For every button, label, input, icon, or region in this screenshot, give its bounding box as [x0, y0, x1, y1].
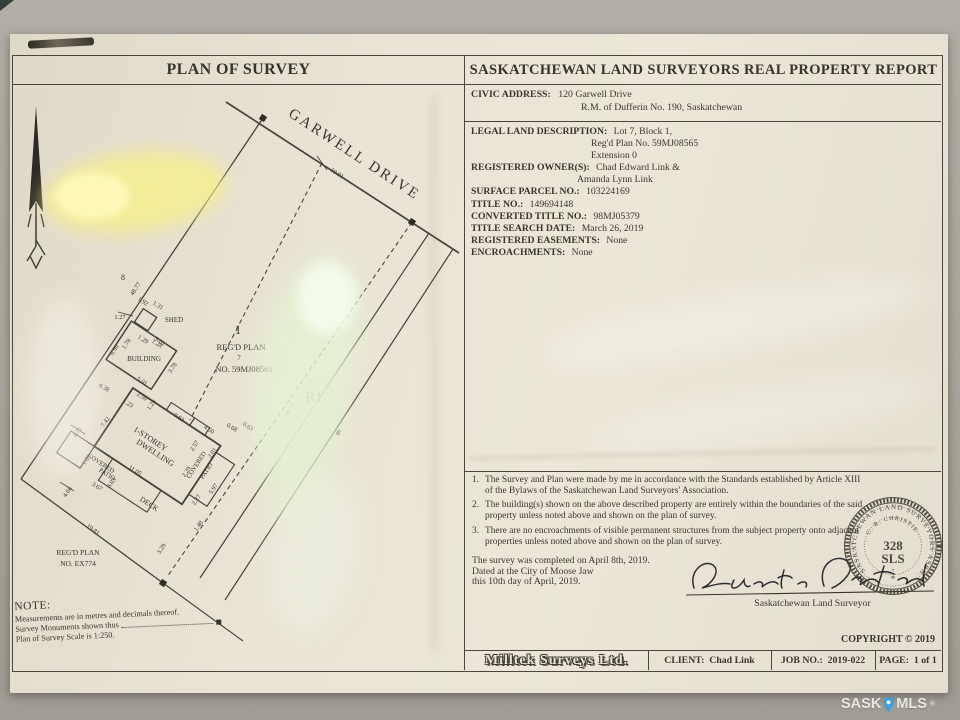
footer-job-number: JOB NO.: 2019-022	[771, 651, 875, 670]
seal-letters: SLS	[881, 551, 904, 566]
sask-mls-watermark: SASK MLS®	[841, 696, 935, 712]
encroachments-label: ENCROACHMENTS:	[471, 247, 565, 258]
measurement: 2.01	[207, 447, 219, 460]
measurement: 3.29	[156, 543, 168, 556]
note-3-number: 3.	[472, 526, 485, 548]
monument-symbol	[217, 620, 222, 625]
block-plan-line2: NO. 59MJ08565	[215, 364, 272, 374]
footer-client: CLIENT: Chad Link	[648, 651, 771, 670]
neighbour-lot-label: 8	[121, 273, 125, 282]
measurement: 1.27	[114, 314, 126, 321]
zone-label: R1	[305, 390, 323, 406]
seal-star: *	[891, 574, 896, 584]
measurement: 7.42	[100, 416, 112, 429]
converted-title-value: 98MJ05379	[593, 211, 639, 222]
title-no-label: TITLE NO.:	[471, 199, 523, 210]
title-search-date-label: TITLE SEARCH DATE:	[471, 223, 575, 234]
note-2-text: The building(s) shown on the above descr…	[485, 500, 868, 522]
copyright-notice: COPYRIGHT © 2019	[700, 634, 935, 645]
note-1: 1. The Survey and Plan were made by me i…	[472, 475, 868, 497]
adjacent-line-2	[225, 249, 453, 600]
measurement: 2.50	[135, 391, 148, 403]
south-plan-line1: REG'D PLAN	[56, 548, 100, 557]
legal-description-label: LEGAL LAND DESCRIPTION:	[471, 126, 607, 137]
surveyor-notes: 1. The Survey and Plan were made by me i…	[472, 475, 868, 551]
deck-label: DECK	[138, 495, 161, 514]
note-3: 3. There are no encroachments of visible…	[472, 526, 868, 548]
measurement: 1.23	[121, 398, 134, 410]
measurement: 0.68	[225, 422, 238, 434]
measurement: 1.92	[136, 296, 149, 308]
block-lot-number: 7	[237, 354, 241, 362]
footer-company: Milltek Surveys Ltd.	[465, 651, 648, 670]
easements-value: None	[606, 235, 627, 246]
north-arrow-icon	[27, 106, 45, 268]
watermark-reg-mark: ®	[930, 701, 935, 708]
converted-title-label: CONVERTED TITLE NO.:	[471, 211, 587, 222]
measurement: 1.40	[193, 520, 205, 533]
block-plan-line1: REG'D PLAN	[217, 342, 266, 352]
measurement: 48.77	[129, 281, 143, 298]
surface-parcel-label: SURFACE PARCEL NO.:	[471, 186, 580, 197]
measurement: 1.25	[146, 399, 158, 412]
measurement: 4.66	[62, 486, 74, 499]
legal-description-block: LEGAL LAND DESCRIPTION: Lot 7, Block 1, …	[471, 126, 931, 259]
civic-address-line2: R.M. of Dufferin No. 190, Saskatchewan	[581, 101, 931, 114]
civic-rule	[465, 121, 941, 122]
measurement: 1.29	[136, 334, 149, 346]
photo-of-survey-document: PLAN OF SURVEY SASKATCHEWAN LAND SURVEYO…	[0, 0, 960, 720]
map-pin-icon	[883, 697, 894, 712]
measurement: 19.81	[329, 167, 345, 181]
survey-monuments	[159, 114, 416, 587]
owners-line1: Chad Edward Link &	[596, 162, 680, 173]
note-1-text: The Survey and Plan were made by me in a…	[485, 475, 868, 497]
note-3-text: There are no encroachments of visible pe…	[485, 526, 868, 548]
building-label: BUILDING	[127, 355, 161, 363]
surface-parcel-value: 103224169	[586, 186, 630, 197]
seal-name: C. R. CHRISTIE	[865, 515, 920, 536]
measurement: 4.71	[72, 426, 84, 439]
legal-description-line2: Reg'd Plan No. 59MJ08565	[591, 138, 931, 150]
measurement: 11.05	[127, 464, 143, 478]
measurement: 0.63	[241, 421, 254, 433]
watermark-text-sask: SASK	[841, 696, 881, 712]
shed-outline	[135, 309, 157, 331]
civic-address-label: CIVIC ADDRESS:	[471, 89, 551, 100]
measurement: 48.77	[284, 401, 298, 418]
title-no-value: 149694148	[530, 199, 574, 210]
civic-address-line1: 120 Garwell Drive	[558, 89, 631, 100]
surveyor-seal: SASKATCHEWAN LAND SURVEYORS ASSN. C. R. …	[835, 488, 951, 604]
plan-title: PLAN OF SURVEY	[12, 61, 465, 79]
owners-label: REGISTERED OWNER(S):	[471, 162, 590, 173]
south-plan-line2: NO. EX774	[60, 559, 96, 568]
note-2: 2. The building(s) shown on the above de…	[472, 500, 868, 522]
measurement: 19.81	[85, 523, 101, 537]
measurement: 4.38	[97, 382, 110, 394]
measurement: 1.78	[121, 338, 133, 351]
survey-plan-drawing: GARWELL DRIVE 1 REG'D PLAN 7 NO. 59MJ085…	[12, 85, 465, 668]
footer-page: PAGE: 1 of 1	[875, 651, 941, 670]
note-2-number: 2.	[472, 500, 485, 522]
notes-rule	[465, 471, 941, 472]
shed-label: SHED	[165, 316, 183, 324]
note-1-number: 1.	[472, 475, 485, 497]
easements-label: REGISTERED EASEMENTS:	[471, 235, 600, 246]
measurement: 2.27	[191, 493, 204, 507]
report-title: SASKATCHEWAN LAND SURVEYORS REAL PROPERT…	[465, 62, 942, 79]
encroachments-value: None	[572, 247, 593, 258]
measurement: 1.31	[151, 300, 164, 312]
title-search-date-value: March 26, 2019	[582, 223, 644, 234]
owners-line2: Amanda Lynn Link	[577, 174, 931, 186]
block-number-label: 1	[235, 322, 242, 337]
seal-name-holder: C. R. CHRISTIE	[865, 515, 920, 536]
watermark-text-mls: MLS	[896, 696, 927, 712]
measurement: 2.57	[189, 439, 202, 453]
legal-description-line1: Lot 7, Block 1,	[614, 126, 672, 137]
civic-address-block: CIVIC ADDRESS: 120 Garwell Drive R.M. of…	[471, 88, 931, 114]
legal-description-line3: Extension 0	[591, 150, 931, 162]
photo-corner-shadow	[0, 0, 14, 11]
